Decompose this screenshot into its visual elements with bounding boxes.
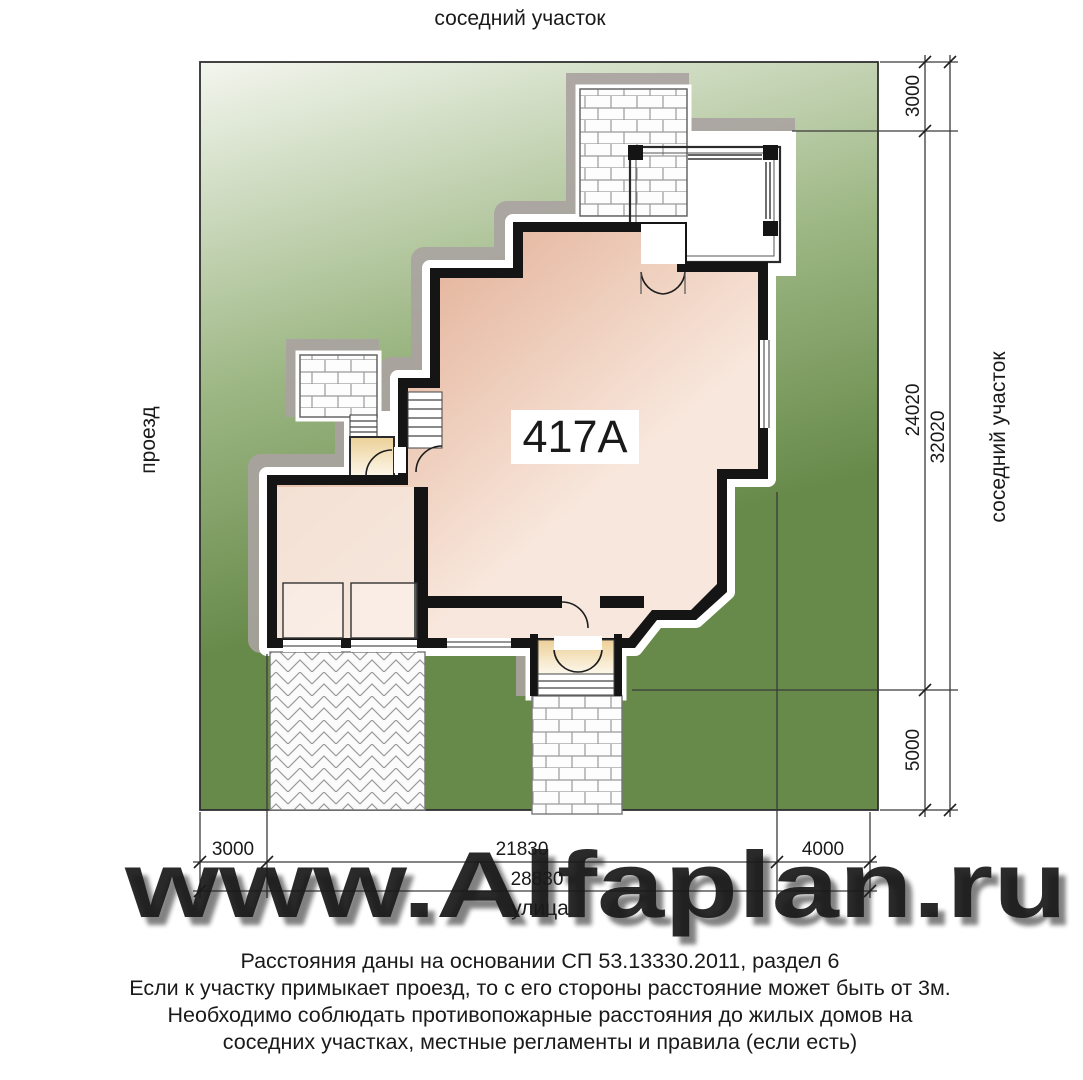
site-plan-page: 417A 3000 21830 — [0, 0, 1083, 1080]
interior-wall — [600, 596, 644, 608]
stairs — [408, 392, 442, 448]
interior-wall — [414, 596, 562, 608]
passage-label: проезд — [137, 406, 160, 473]
parking-space — [283, 583, 343, 638]
note-line-1: Расстояния даны на основании СП 53.13330… — [240, 949, 839, 973]
window — [760, 340, 772, 428]
note-line-2: Если к участку примыкает проезд, то с ег… — [129, 976, 951, 1000]
dim-right-top: 3000 — [903, 75, 924, 117]
driveway — [270, 652, 425, 810]
terrace-column-icon — [628, 145, 643, 160]
watermark: www.Alfaplan.ru www.Alfaplan.ru — [124, 832, 1074, 945]
neighbor-right-label: соседний участок — [987, 351, 1010, 523]
neighbor-top-label: соседний участок — [434, 7, 606, 30]
entry-steps — [350, 415, 377, 437]
garage-door — [283, 640, 341, 652]
dim-right-bottom: 5000 — [903, 729, 924, 771]
entry-porch — [350, 437, 394, 477]
house-label: 417A — [522, 411, 627, 462]
notes: Расстояния даны на основании СП 53.13330… — [129, 949, 951, 1054]
porch-steps — [538, 674, 614, 695]
note-line-4: соседних участках, местные регламенты и … — [223, 1030, 857, 1054]
dim-right-middle: 24020 — [903, 384, 924, 437]
site-plan-drawing: 417A 3000 21830 — [0, 0, 1083, 1080]
walkway — [532, 696, 622, 814]
terrace-column-icon — [763, 145, 778, 160]
dim-right-total: 32020 — [928, 411, 949, 464]
watermark-text: www.Alfaplan.ru — [124, 832, 1067, 937]
terrace-column-icon — [763, 221, 778, 236]
garage-door — [351, 640, 417, 652]
parking-space — [351, 583, 417, 638]
patio-left — [300, 355, 377, 417]
house-label-box: 417A — [511, 410, 639, 464]
window — [447, 638, 511, 650]
note-line-3: Необходимо соблюдать противопожарные рас… — [167, 1003, 912, 1027]
